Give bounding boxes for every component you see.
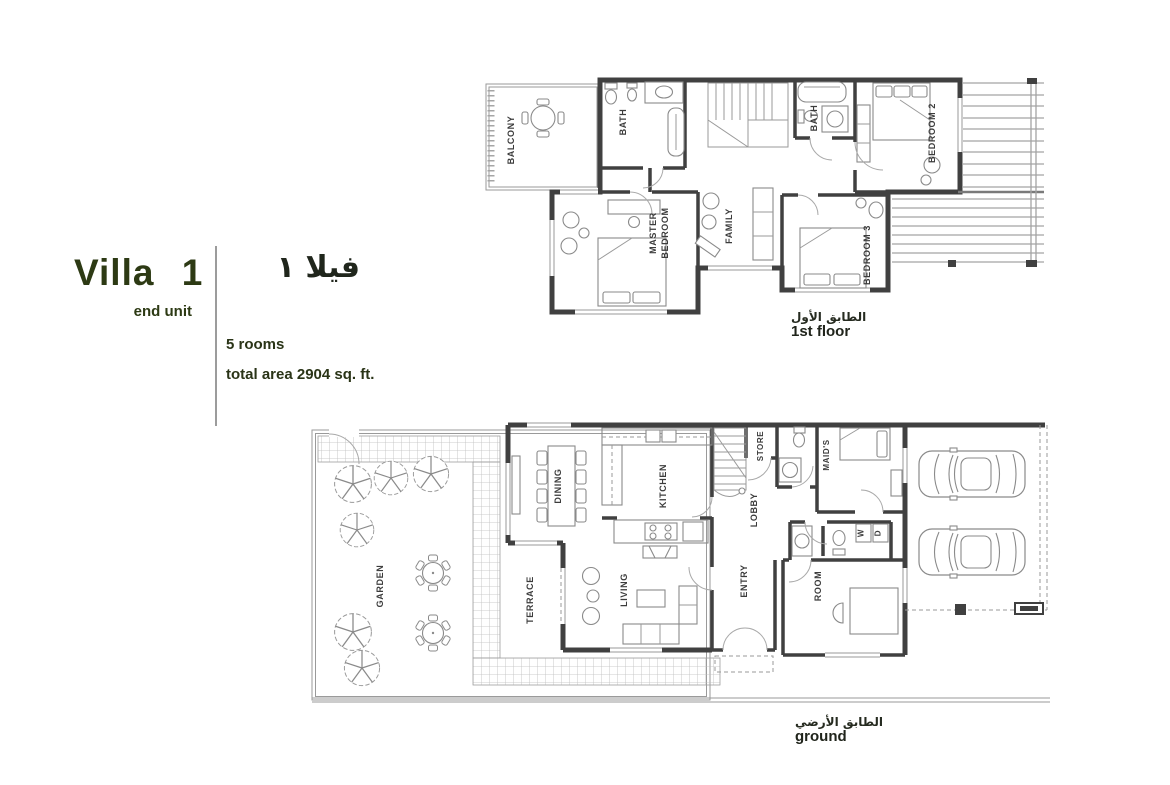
master-bedroom: MASTER BEDROOM (561, 192, 670, 306)
pergola (892, 78, 1044, 267)
tree-icon (340, 513, 374, 547)
balcony-label: BALCONY (506, 116, 516, 165)
sink-icon (662, 430, 676, 442)
ground-bath-top (779, 427, 813, 487)
tree-icon (413, 456, 448, 491)
first-floor-caption-english: 1st floor (791, 324, 866, 341)
tiled-path (473, 658, 720, 685)
stove-icon (645, 523, 677, 540)
store: STORE (748, 431, 771, 480)
armchair-icon (563, 212, 579, 228)
ground-floor-caption: الطابق الأرضي ground (795, 716, 883, 746)
carport (905, 425, 1047, 615)
first-floor-interior-walls (600, 80, 888, 268)
study-room: ROOM (789, 560, 898, 634)
sink-icon (783, 463, 798, 478)
armchair-icon (583, 568, 600, 585)
desk-icon (850, 588, 898, 634)
tree-icon (335, 614, 372, 651)
stairs-ground (714, 428, 746, 497)
fridge-icon (683, 522, 703, 541)
unit-type-label: end unit (74, 303, 192, 320)
entry-porch (715, 656, 773, 672)
armchair-icon (869, 202, 883, 218)
bedroom2-label: BEDROOM 2 (927, 103, 937, 163)
tv-icon (643, 546, 677, 558)
master-label-2: BEDROOM (660, 207, 670, 258)
tree-icon (335, 466, 372, 503)
sink-icon (795, 534, 809, 548)
dining-room: DINING (512, 446, 586, 526)
sofa-icon (753, 188, 773, 260)
store-label: STORE (756, 431, 765, 461)
kitchen-label: KITCHEN (658, 464, 668, 508)
chair-icon (833, 603, 843, 623)
entry: ENTRY (715, 564, 773, 672)
bath2-label: BATH (809, 105, 819, 132)
armchair-icon (583, 608, 600, 625)
balcony-table (522, 99, 564, 137)
family-label: FAMILY (724, 208, 734, 244)
sink-icon (646, 430, 660, 442)
family-room: FAMILY (695, 188, 773, 260)
maids-room: MAID'S (822, 428, 902, 512)
tree-icon (344, 650, 379, 685)
sink-icon (827, 111, 843, 127)
living-label: LIVING (619, 573, 629, 607)
lobby-label: LOBBY (749, 493, 759, 528)
bath2: BATH (798, 82, 848, 160)
total-area-label: total area 2904 sq. ft. (226, 366, 374, 383)
first-floor-plan: BALCONY (480, 70, 1070, 320)
garden-table (415, 555, 451, 591)
first-floor-caption: الطابق الأول 1st floor (791, 311, 866, 341)
dining-label: DINING (553, 468, 563, 503)
terrace-label: TERRACE (525, 576, 535, 624)
tiled-path (318, 436, 500, 462)
stairs-upper (708, 83, 788, 147)
toilet-icon (606, 90, 617, 104)
maids-label: MAID'S (822, 439, 831, 470)
wardrobe-icon (857, 105, 870, 162)
floorplan-sheet: Villa 1 end unit فيلا ١ 5 rooms total ar… (0, 0, 1170, 785)
coffee-table (637, 590, 665, 607)
wardrobe-icon (891, 470, 902, 496)
ground-bath-lower: W D (792, 522, 888, 556)
page-title: Villa 1 (74, 252, 203, 294)
bedroom3: BEDROOM 3 (798, 195, 883, 288)
car-icon (919, 526, 1025, 578)
dryer-label: D (874, 530, 883, 536)
entry-label: ENTRY (739, 564, 749, 597)
sofa-icon (623, 624, 679, 644)
bathtub-icon (798, 82, 846, 102)
balcony-area: BALCONY (486, 84, 600, 190)
garden-table (415, 615, 451, 651)
rooms-count-label: 5 rooms (226, 336, 284, 353)
vertical-divider (215, 246, 217, 426)
room-label: ROOM (813, 571, 823, 601)
toilet-icon (833, 531, 845, 546)
bedroom2: BEDROOM 2 (855, 83, 940, 185)
car-icon (919, 448, 1025, 500)
sink-icon (656, 86, 673, 98)
bath1-label: BATH (618, 109, 628, 136)
washer-dryer: W D (856, 524, 888, 542)
kitchen: KITCHEN (602, 428, 712, 543)
master-label-1: MASTER (648, 212, 658, 254)
sideboard-icon (512, 456, 520, 514)
bath1: BATH (605, 82, 684, 188)
bidet-icon (628, 89, 637, 101)
page-title-arabic: فيلا ١ (238, 250, 360, 285)
ground-floor-caption-english: ground (795, 729, 883, 746)
armchair-icon (561, 238, 577, 254)
living-room: LIVING (583, 546, 713, 644)
tiled-path (473, 462, 500, 658)
washer-label: W (857, 529, 866, 537)
garden-label: GARDEN (375, 565, 385, 608)
toilet-icon (794, 433, 805, 447)
ground-floor-plan: GARDEN (305, 418, 1070, 718)
armchair-icon (703, 193, 719, 209)
bedroom3-label: BEDROOM 3 (862, 225, 872, 285)
tree-icon (374, 461, 408, 495)
first-floor-windows (548, 98, 965, 316)
